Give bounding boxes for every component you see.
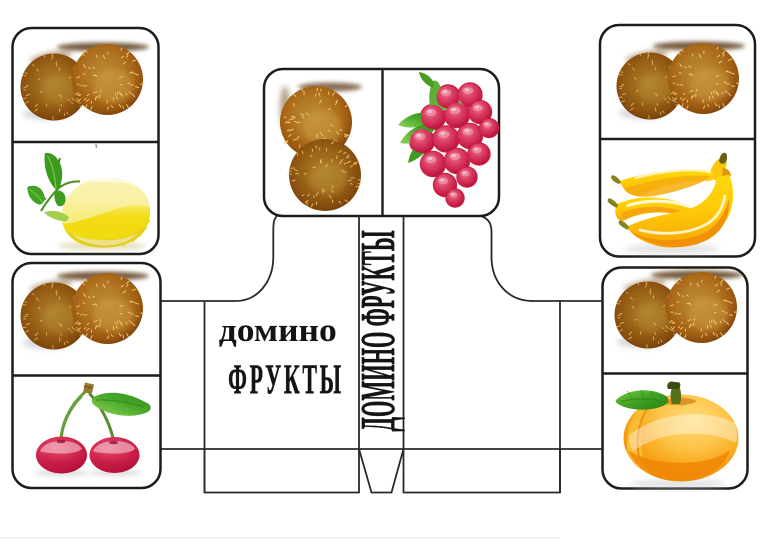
svg-text:домино: домино	[219, 313, 337, 349]
svg-text:ДОМИНО ФРУКТЫ: ДОМИНО ФРУКТЫ	[351, 230, 406, 431]
svg-text:ФРУКТЫ: ФРУКТЫ	[228, 357, 344, 403]
